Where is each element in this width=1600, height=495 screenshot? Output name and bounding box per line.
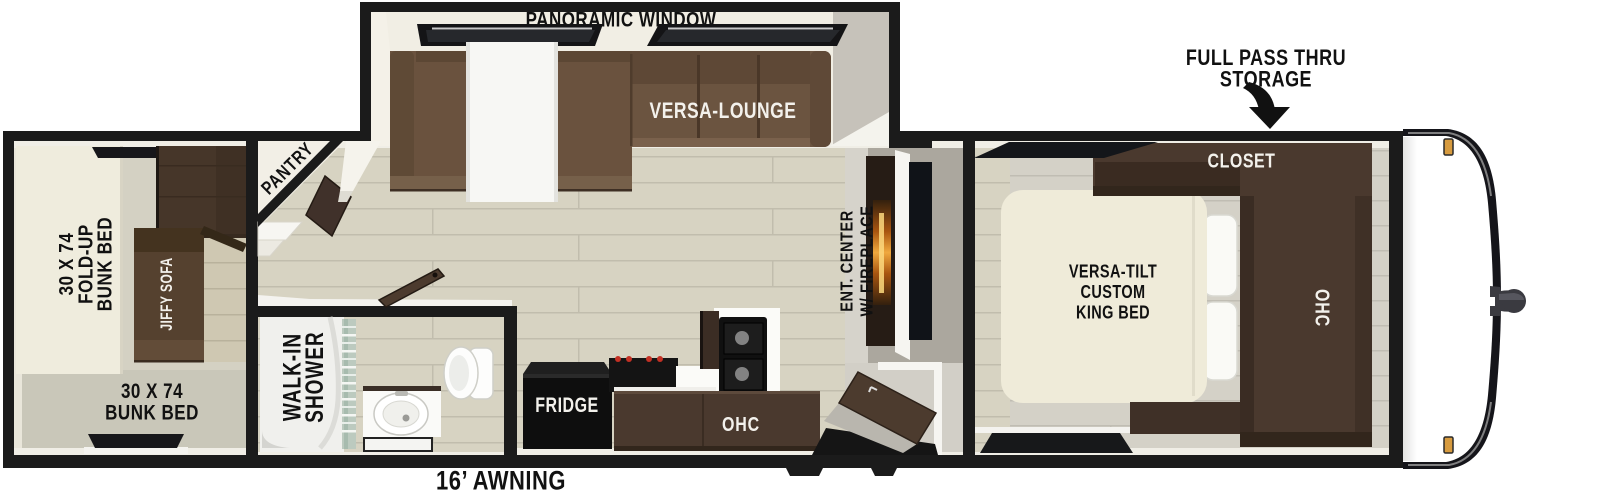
svg-text:CLOSET: CLOSET xyxy=(1208,150,1276,172)
svg-text:16’ AWNING: 16’ AWNING xyxy=(436,467,566,495)
svg-text:STORAGE: STORAGE xyxy=(1220,68,1312,92)
svg-text:FRIDGE: FRIDGE xyxy=(535,394,598,418)
svg-text:WALK-INSHOWER: WALK-INSHOWER xyxy=(278,331,328,422)
svg-text:JIFFY SOFA: JIFFY SOFA xyxy=(158,257,176,330)
svg-text:OHC: OHC xyxy=(1311,289,1333,327)
svg-text:VERSA-LOUNGE: VERSA-LOUNGE xyxy=(650,99,797,123)
svg-text:VERSA-TILTCUSTOMKING BED: VERSA-TILTCUSTOMKING BED xyxy=(1069,262,1157,323)
svg-text:OHC: OHC xyxy=(722,413,760,435)
svg-text:ENT. CENTERW/ FIREPLACE: ENT. CENTERW/ FIREPLACE xyxy=(837,205,876,316)
